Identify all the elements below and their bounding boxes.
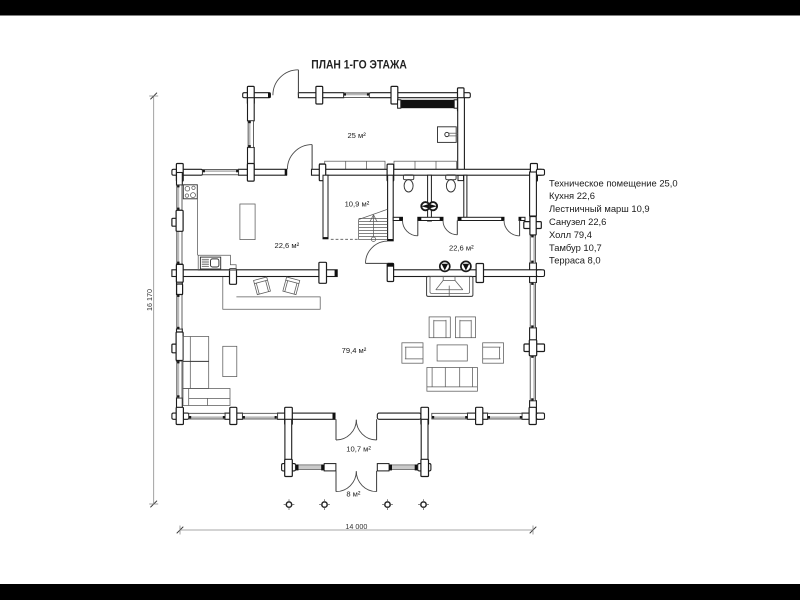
svg-text:22,6 м²: 22,6 м² [449, 244, 474, 253]
svg-text:ПЛАН 1-ГО ЭТАЖА: ПЛАН 1-ГО ЭТАЖА [311, 58, 407, 72]
svg-text:14 000: 14 000 [345, 522, 367, 531]
svg-text:10,7 м²: 10,7 м² [346, 445, 371, 454]
svg-text:Санузел 22,6: Санузел 22,6 [549, 216, 606, 227]
svg-text:25 м²: 25 м² [347, 131, 366, 140]
svg-text:Терраса 8,0: Терраса 8,0 [549, 255, 601, 266]
svg-text:8 м²: 8 м² [346, 490, 361, 499]
svg-text:Тамбур 10,7: Тамбур 10,7 [549, 242, 602, 253]
svg-text:16 170: 16 170 [145, 289, 154, 311]
svg-text:10,9 м²: 10,9 м² [345, 200, 370, 209]
svg-text:Лестничный марш 10,9: Лестничный марш 10,9 [549, 203, 650, 214]
svg-text:Кухня 22,6: Кухня 22,6 [549, 190, 595, 201]
svg-text:22,6 м²: 22,6 м² [274, 241, 299, 250]
svg-text:Холл 79,4: Холл 79,4 [549, 229, 592, 240]
svg-text:79,4 м²: 79,4 м² [342, 346, 367, 355]
svg-text:Техническое помещение 25,0: Техническое помещение 25,0 [549, 177, 678, 188]
